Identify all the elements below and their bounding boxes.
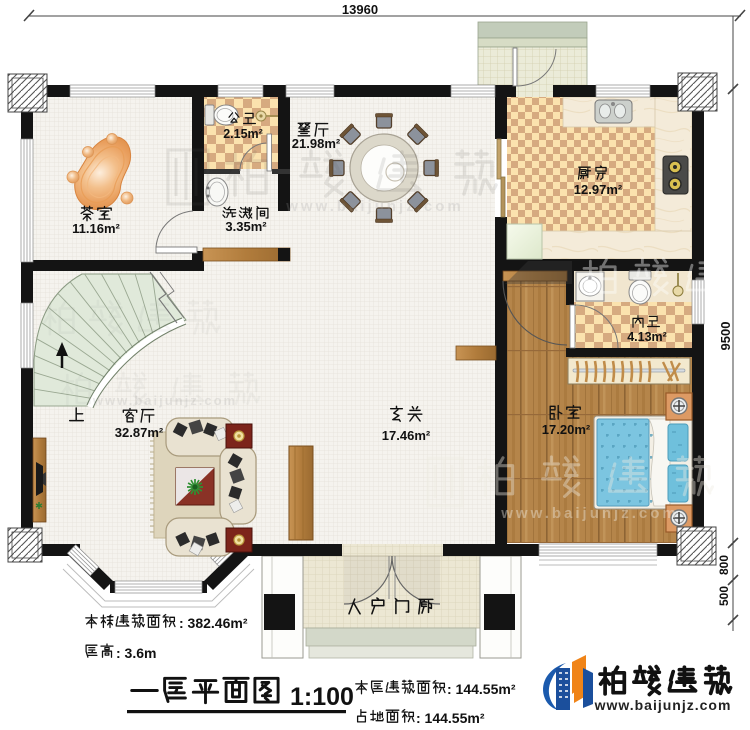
svg-text:13960: 13960: [342, 2, 378, 17]
svg-text:21.98m²: 21.98m²: [292, 136, 341, 151]
svg-text:17.46m²: 17.46m²: [382, 428, 431, 443]
svg-text:: 382.46m²: : 382.46m²: [179, 615, 248, 631]
svg-text:4.13m²: 4.13m²: [627, 330, 667, 344]
svg-text:1:100: 1:100: [290, 683, 354, 711]
svg-text:9500: 9500: [718, 322, 733, 351]
svg-text:: 144.55m²: : 144.55m²: [447, 681, 516, 697]
svg-text:32.87m²: 32.87m²: [115, 425, 164, 440]
svg-text:500: 500: [717, 586, 731, 606]
svg-text:www.baijunjz.com: www.baijunjz.com: [594, 697, 732, 713]
svg-text:www.baijunjz.com: www.baijunjz.com: [500, 505, 678, 522]
svg-text:800: 800: [717, 555, 731, 575]
svg-text:12.97m²: 12.97m²: [574, 182, 623, 197]
svg-text:www.baijunjz.com: www.baijunjz.com: [92, 393, 237, 408]
svg-text:11.16m²: 11.16m²: [72, 221, 120, 236]
svg-text:3.35m²: 3.35m²: [225, 219, 267, 234]
svg-text:: 3.6m: : 3.6m: [116, 645, 156, 661]
svg-text:: 144.55m²: : 144.55m²: [416, 710, 485, 726]
svg-text:17.20m²: 17.20m²: [542, 422, 591, 437]
svg-text:www.baijunjz.com: www.baijunjz.com: [285, 198, 463, 215]
svg-text:2.15m²: 2.15m²: [223, 127, 263, 141]
